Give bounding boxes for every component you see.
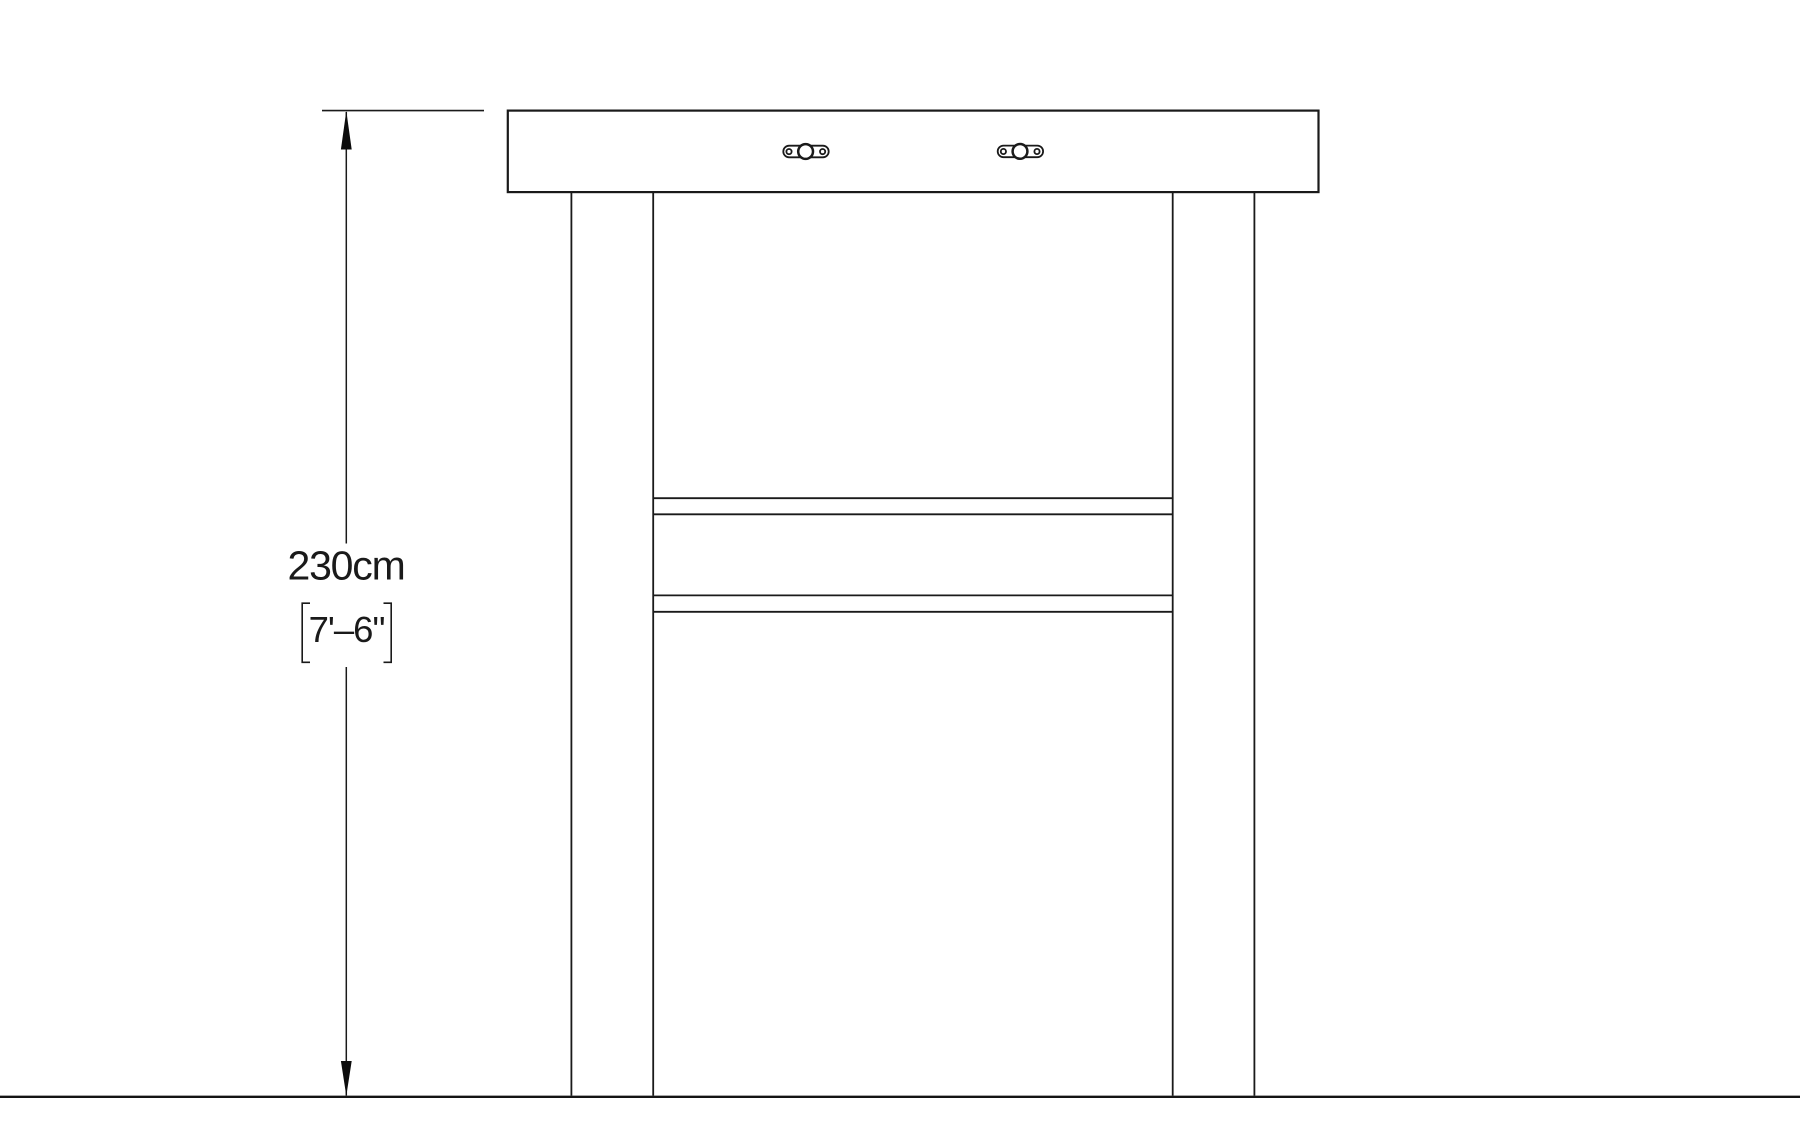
svg-text:7'–6": 7'–6" [309,609,385,650]
svg-text:230cm: 230cm [287,543,404,589]
